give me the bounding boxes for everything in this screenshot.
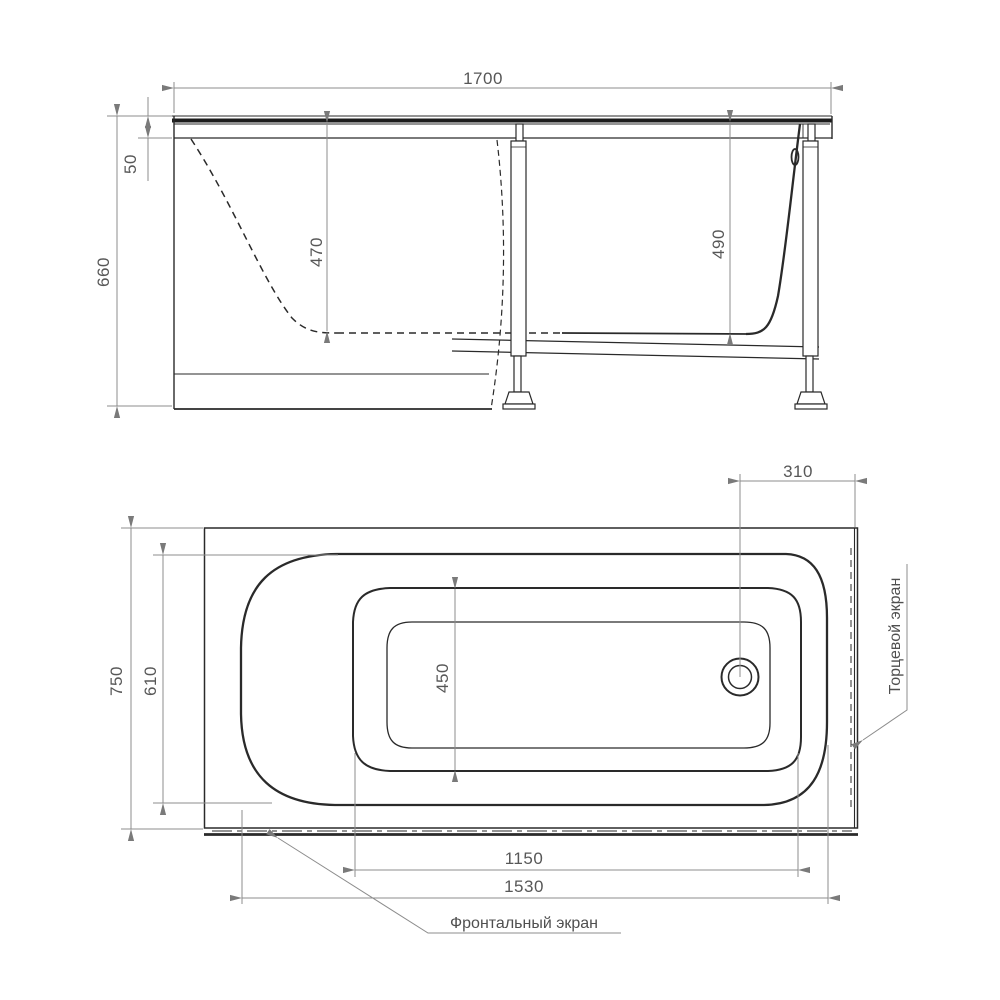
dimension-rim-50: 50 [121, 97, 172, 181]
dimension-inner-width-610: 610 [141, 555, 338, 803]
frame-rail-bottom [452, 351, 819, 359]
tub-bottom-visible [562, 333, 748, 334]
side-tub-body [172, 116, 832, 409]
leg-foot-base [795, 404, 827, 409]
dimension-label-450: 450 [433, 663, 452, 693]
tub-left-wall-hidden [191, 139, 337, 333]
leg-neck [808, 124, 815, 141]
plan-view: 310 750 610 450 1150 [107, 462, 907, 933]
leg-foot-base [503, 404, 535, 409]
leg-tube [511, 141, 526, 356]
tub-bottom-contour [353, 588, 801, 771]
tub-outer-rect [205, 528, 858, 828]
dimension-screen-length-1530: 1530 [242, 745, 828, 904]
side-view: 1700 50 660 470 490 [94, 69, 832, 409]
front-screen-callout: Фронтальный экран [278, 838, 621, 933]
leg-tube [803, 141, 818, 356]
dimension-label-750: 750 [107, 666, 126, 696]
panel-break-curve [491, 140, 504, 409]
support-leg-right [795, 124, 827, 409]
dimension-depth-470: 470 [307, 123, 327, 331]
front-screen-label: Фронтальный экран [450, 915, 598, 932]
frame-rail-top [452, 339, 819, 347]
side-support-frame [452, 124, 827, 409]
leg-rod [514, 356, 521, 392]
dimension-label-1530: 1530 [504, 877, 544, 896]
dimension-label-1700: 1700 [463, 69, 503, 88]
drawing-canvas: 1700 50 660 470 490 [0, 0, 1000, 1000]
support-leg-left [503, 124, 535, 409]
dimension-label-310: 310 [783, 462, 813, 481]
end-screen-callout: Торцевой экран [863, 564, 907, 740]
rim-outer-contour [241, 554, 827, 805]
leg-neck [516, 124, 523, 141]
dimension-depth-490: 490 [709, 122, 730, 333]
leg-rod [806, 356, 813, 392]
dimension-length-1700: 1700 [174, 69, 831, 114]
dimension-label-50: 50 [121, 154, 140, 174]
leg-foot [797, 392, 825, 404]
dimension-label-610: 610 [141, 666, 160, 696]
plan-tub-body [204, 528, 858, 835]
dimension-label-1150: 1150 [505, 849, 544, 868]
end-screen-label: Торцевой экран [887, 578, 904, 695]
bathtub-technical-drawing: 1700 50 660 470 490 [0, 0, 1000, 1000]
dimension-label-490: 490 [709, 229, 728, 259]
dimension-label-470: 470 [307, 237, 326, 267]
dimension-label-660: 660 [94, 257, 113, 287]
dimension-bottom-width-450: 450 [433, 589, 455, 770]
dimension-drain-310: 310 [740, 462, 855, 677]
leg-foot [505, 392, 533, 404]
